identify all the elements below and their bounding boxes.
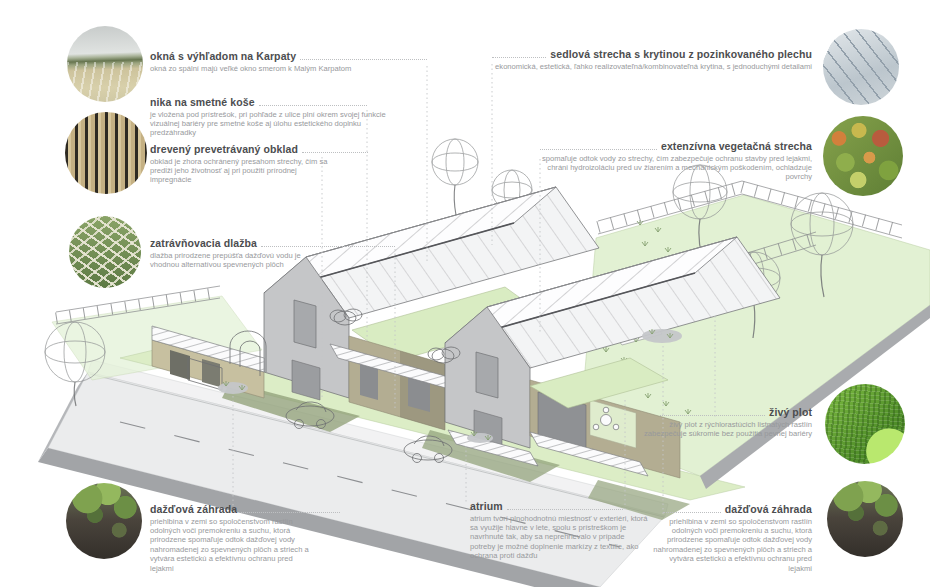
- annotation-desc: obklad je zhora ochránený presahom strec…: [150, 157, 336, 185]
- dotted-rule: [241, 512, 340, 513]
- annotation-title: dažďová záhrada: [725, 503, 812, 515]
- site-diagram-page: okná s výhľadom na Karpaty okná zo spáln…: [0, 0, 930, 587]
- annotation-desc: spomaľuje odtok vody zo strechy, čím zab…: [532, 154, 812, 182]
- photo-grass-pavers: [69, 216, 141, 288]
- photo-wood-cladding: [65, 112, 147, 194]
- annotation-dazdova-lava: dažďová záhrada priehlbina v zemi so spo…: [150, 503, 340, 573]
- annotation-nika: nika na smetné koše je vložená pod príst…: [150, 96, 367, 138]
- annotation-desc: priehlbina v zemi so spoločenstvom rastl…: [150, 517, 310, 574]
- dotted-rule: [300, 59, 427, 60]
- dotted-rule: [492, 57, 546, 58]
- annotation-title: atrium: [470, 500, 503, 512]
- annotation-zivy-plot: živý plot živý plot z rýchlorastúcich li…: [660, 406, 812, 438]
- annotation-desc: ekonomická, estetická, ľahko realizovate…: [492, 62, 812, 71]
- annotation-atrium: atrium atrium tvorí plnohodnotnú miestno…: [470, 500, 623, 561]
- photo-green-roof: [823, 116, 903, 196]
- annotation-dazdova-prava: dažďová záhrada priehlbina v zemi so spo…: [663, 503, 812, 573]
- annotation-title: živý plot: [769, 406, 812, 418]
- annotation-desc: priehlbina v zemi so spoločenstvom rastl…: [650, 517, 812, 574]
- photo-rain-garden-right: [827, 481, 903, 557]
- dotted-rule: [261, 246, 395, 247]
- dotted-rule: [663, 512, 721, 513]
- annotation-desc: atrium tvorí plnohodnotnú miestnosť v ex…: [470, 514, 650, 561]
- photo-hedge: [825, 384, 905, 464]
- annotation-title: sedlová strecha s krytinou z pozinkované…: [550, 48, 812, 60]
- house-a-gable-window: [294, 300, 316, 348]
- annotation-title: dažďová záhrada: [150, 503, 237, 515]
- axonometric-site-drawing: [0, 0, 930, 587]
- dotted-rule: [660, 415, 765, 416]
- annotation-title: drevený prevetrávaný obklad: [150, 143, 298, 155]
- dotted-rule: [259, 105, 367, 106]
- annotation-sedlova: sedlová strecha s krytinou z pozinkované…: [492, 48, 812, 71]
- house-b-gable-window: [476, 352, 498, 398]
- annotation-okna: okná s výhľadom na Karpaty okná zo spáln…: [150, 50, 427, 73]
- photo-karpaty-view: [67, 26, 143, 102]
- dotted-rule: [507, 509, 623, 510]
- annotation-zatravnovacia: zatrávňovacia dlažba dlažba prirodzene p…: [150, 237, 395, 269]
- annotation-title: okná s výhľadom na Karpaty: [150, 50, 296, 62]
- annotation-extenzivna: extenzívna vegetačná strecha spomaľuje o…: [540, 140, 812, 182]
- annotation-title: zatrávňovacia dlažba: [150, 237, 257, 249]
- annotation-dreveny: drevený prevetrávaný obklad obklad je zh…: [150, 143, 368, 185]
- annotation-title: nika na smetné koše: [150, 96, 255, 108]
- annotation-desc: okná zo spální majú veľké okno smerom k …: [150, 64, 360, 73]
- annotation-desc: je vložená pod prístrešok, pri pohľade z…: [150, 110, 408, 138]
- annotation-desc: dlažba prirodzene prepúšťa dažďovú vodu …: [150, 251, 308, 270]
- dotted-rule: [302, 152, 368, 153]
- annotation-title: extenzívna vegetačná strecha: [661, 140, 812, 152]
- photo-rain-garden-left: [66, 483, 142, 559]
- annotation-desc: živý plot z rýchlorastúcich listnatých r…: [644, 420, 812, 439]
- dotted-rule: [540, 149, 657, 150]
- photo-metal-roof: [823, 29, 899, 105]
